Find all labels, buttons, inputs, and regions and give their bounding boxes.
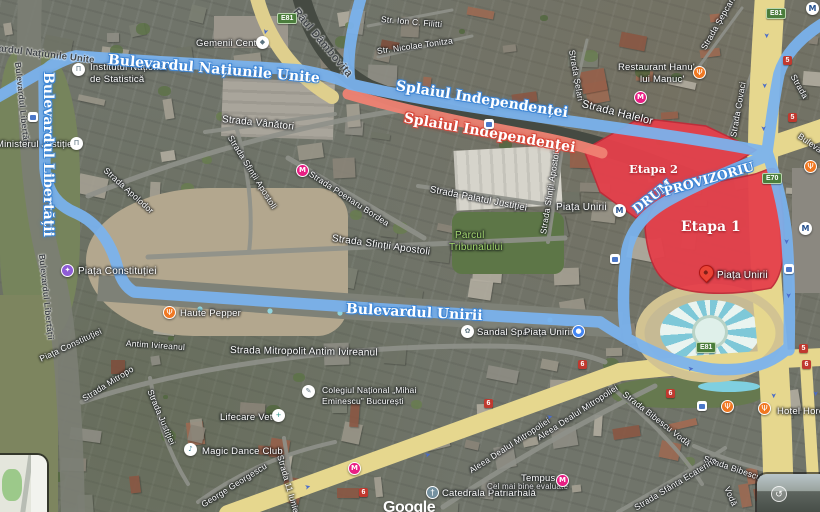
bus-stop-icon[interactable] — [28, 112, 38, 122]
e70-road-badge: E70 — [762, 173, 782, 184]
bus-stop-icon[interactable] — [784, 264, 794, 274]
music-note-icon[interactable]: ♪ — [184, 443, 197, 456]
metro-m-icon[interactable]: M — [806, 2, 819, 15]
route-6-badge: 6 — [666, 389, 675, 398]
metro-m-icon[interactable]: M — [613, 204, 626, 217]
street-view-arrow-icon: ↺ — [771, 486, 787, 502]
bus-stop-icon[interactable] — [610, 254, 620, 264]
restaurant-icon[interactable]: Ψ — [758, 402, 771, 415]
route-6-badge: 6 — [484, 399, 493, 408]
metro-station-icon[interactable]: M — [634, 91, 647, 104]
traffic-arrow-icon: ➤ — [782, 238, 789, 244]
route-6-badge: 6 — [802, 360, 811, 369]
bus-stop-icon[interactable] — [484, 119, 494, 129]
church-icon[interactable]: † — [426, 486, 439, 499]
shop-icon[interactable]: ◆ — [256, 36, 269, 49]
traffic-arrow-icon: ➤ — [759, 125, 766, 131]
e81-road-badge: E81 — [766, 8, 786, 19]
traffic-arrow-icon: ➤ — [769, 393, 776, 399]
restaurant-icon[interactable]: Ψ — [804, 160, 817, 173]
route-5-badge: 5 — [783, 56, 792, 65]
route-5-badge: 5 — [799, 344, 808, 353]
traffic-arrow-icon: ➤ — [762, 33, 769, 39]
traffic-arrow-icon: ➤ — [261, 28, 269, 35]
metro-station-icon[interactable]: M — [348, 462, 361, 475]
google-attribution-logo: Google — [383, 499, 435, 512]
restaurant-icon[interactable]: Ψ — [163, 306, 176, 319]
vet-icon[interactable]: + — [272, 409, 285, 422]
street-view-thumbnail[interactable]: ↺ — [757, 474, 820, 512]
traffic-arrow-icon: ➤ — [424, 451, 432, 459]
metro-m-icon[interactable]: M — [799, 222, 812, 235]
piata-unirii-pin[interactable] — [696, 262, 717, 283]
map-icons-layer: ◆ Π Π Ψ Ψ Ψ Ψ Ψ M M M M M M M ✦ ✿ ● + ♪ … — [0, 0, 820, 512]
metro-station-icon[interactable]: M — [556, 474, 569, 487]
route-5-badge: 5 — [788, 113, 797, 122]
attraction-icon[interactable]: ✦ — [61, 264, 74, 277]
mini-map-inset[interactable] — [0, 455, 47, 512]
e81-road-badge: E81 — [696, 342, 716, 353]
traffic-arrow-icon: ➤ — [760, 83, 767, 89]
bus-stop-icon[interactable] — [697, 401, 707, 411]
restaurant-icon[interactable]: Ψ — [721, 400, 734, 413]
traffic-arrow-icon: ➤ — [811, 391, 818, 397]
school-icon[interactable]: ✎ — [302, 385, 315, 398]
traffic-arrow-icon: ➤ — [304, 483, 312, 491]
bank-icon[interactable]: Π — [72, 63, 85, 76]
route-6-badge: 6 — [359, 488, 368, 497]
traffic-arrow-icon: ➤ — [688, 366, 695, 374]
traffic-arrow-icon: ➤ — [784, 292, 791, 298]
info-icon[interactable]: ● — [572, 325, 585, 338]
mini-map-park — [2, 469, 22, 501]
route-6-badge: 6 — [578, 360, 587, 369]
bank-icon[interactable]: Π — [70, 137, 83, 150]
satellite-map-canvas[interactable]: Bulevardul Națiunile Unite Râul Dâmboviț… — [0, 0, 820, 512]
traffic-arrow-icon: ➤ — [546, 413, 554, 421]
restaurant-icon[interactable]: Ψ — [693, 66, 706, 79]
e81-road-badge: E81 — [277, 13, 297, 24]
metro-station-icon[interactable]: M — [296, 164, 309, 177]
spa-icon[interactable]: ✿ — [461, 325, 474, 338]
mini-map-block — [31, 455, 47, 512]
